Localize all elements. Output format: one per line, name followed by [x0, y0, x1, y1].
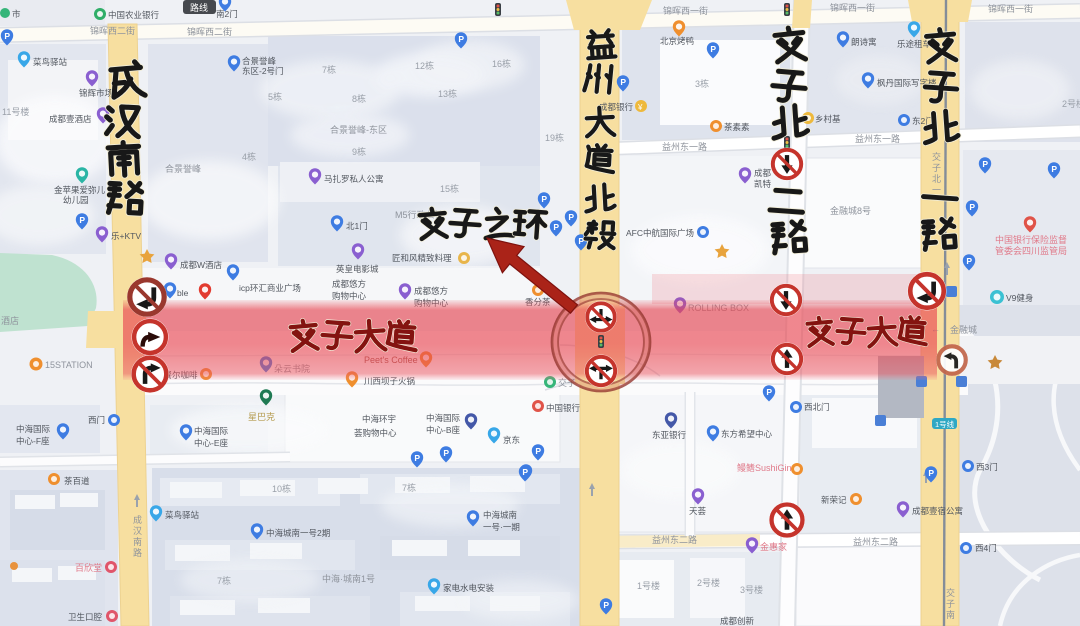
svg-text:东区-2号门: 东区-2号门 — [242, 66, 284, 76]
svg-text:11号楼: 11号楼 — [2, 106, 29, 117]
svg-text:益州东一路: 益州东一路 — [662, 141, 707, 152]
svg-text:百欣堂: 百欣堂 — [75, 562, 102, 573]
svg-text:西3门: 西3门 — [976, 462, 998, 472]
svg-text:马扎罗私人公寓: 马扎罗私人公寓 — [324, 174, 384, 184]
svg-text:乐+KTV: 乐+KTV — [111, 231, 141, 241]
svg-text:路线: 路线 — [190, 2, 208, 13]
svg-text:子: 子 — [932, 163, 941, 173]
svg-text:中心-F座: 中心-F座 — [16, 436, 50, 446]
svg-text:AFC中航国际广场: AFC中航国际广场 — [626, 228, 694, 238]
svg-text:10栋: 10栋 — [272, 483, 291, 494]
svg-text:北1门: 北1门 — [346, 221, 368, 231]
svg-text:一: 一 — [932, 185, 941, 195]
svg-text:合景誉峰: 合景誉峰 — [165, 163, 201, 174]
svg-text:一号·一期: 一号·一期 — [483, 522, 520, 532]
svg-text:汉: 汉 — [133, 526, 142, 536]
svg-text:新荣记: 新荣记 — [821, 495, 847, 505]
svg-text:北: 北 — [932, 174, 941, 184]
svg-text:5栋: 5栋 — [268, 91, 282, 102]
svg-text:成都创新: 成都创新 — [720, 616, 755, 626]
svg-text:京东: 京东 — [503, 435, 520, 445]
svg-text:ble: ble — [177, 288, 189, 298]
svg-text:成都悠方: 成都悠方 — [414, 286, 448, 296]
svg-text:中国银行: 中国银行 — [546, 403, 581, 413]
svg-text:中海城南一号2期: 中海城南一号2期 — [266, 528, 330, 538]
svg-text:成都: 成都 — [754, 168, 772, 178]
svg-text:中海·城南1号: 中海·城南1号 — [322, 573, 375, 584]
svg-text:19栋: 19栋 — [545, 132, 564, 143]
svg-text:16栋: 16栋 — [492, 58, 511, 69]
svg-text:益州东二路: 益州东二路 — [853, 536, 898, 547]
svg-text:幼儿园: 幼儿园 — [63, 195, 89, 205]
svg-text:家电水电安装: 家电水电安装 — [443, 583, 495, 593]
svg-text:锦晖西一街: 锦晖西一街 — [988, 3, 1033, 14]
svg-text:9栋: 9栋 — [352, 146, 366, 157]
svg-text:锦晖西二街: 锦晖西二街 — [187, 26, 232, 37]
svg-text:中海国际: 中海国际 — [16, 424, 51, 434]
svg-text:乡村基: 乡村基 — [815, 114, 841, 124]
svg-text:锦辉市场: 锦辉市场 — [79, 88, 113, 98]
svg-text:北京烤鸭: 北京烤鸭 — [660, 36, 694, 46]
svg-text:3栋: 3栋 — [695, 78, 709, 89]
svg-text:12栋: 12栋 — [415, 60, 434, 71]
svg-text:1号线: 1号线 — [935, 419, 955, 429]
svg-text:菜鸟驿站: 菜鸟驿站 — [33, 57, 68, 67]
svg-text:西门: 西门 — [88, 415, 105, 425]
svg-text:中海国际: 中海国际 — [194, 426, 229, 436]
svg-text:成都W酒店: 成都W酒店 — [180, 260, 223, 270]
svg-text:交: 交 — [932, 151, 941, 162]
svg-text:益州东二路: 益州东二路 — [652, 534, 697, 545]
svg-text:东亚银行: 东亚银行 — [652, 430, 687, 440]
svg-text:合景誉峰-东区: 合景誉峰-东区 — [330, 124, 387, 135]
svg-text:西4门: 西4门 — [975, 543, 997, 553]
svg-text:朗诗寓: 朗诗寓 — [851, 37, 877, 47]
svg-text:3号楼: 3号楼 — [740, 584, 763, 595]
svg-text:乐途租车: 乐途租车 — [897, 39, 931, 49]
svg-text:茶素素: 茶素素 — [724, 122, 750, 132]
svg-text:东方希望中心: 东方希望中心 — [721, 429, 773, 439]
svg-text:7栋: 7栋 — [322, 64, 336, 75]
svg-text:凯特: 凯特 — [754, 179, 772, 189]
svg-text:路: 路 — [133, 547, 142, 558]
svg-text:西北门: 西北门 — [804, 402, 830, 412]
svg-text:2号楼: 2号楼 — [1062, 98, 1080, 109]
svg-text:金苹果爱弥儿: 金苹果爱弥儿 — [54, 185, 106, 195]
svg-text:中心-B座: 中心-B座 — [426, 425, 461, 435]
svg-text:1号楼: 1号楼 — [637, 580, 660, 591]
svg-text:15栋: 15栋 — [440, 183, 459, 194]
svg-text:7栋: 7栋 — [402, 482, 416, 493]
svg-text:星巴克: 星巴克 — [248, 412, 275, 422]
svg-text:金融城: 金融城 — [950, 324, 977, 335]
svg-text:交: 交 — [946, 587, 955, 598]
svg-text:英皇电影城: 英皇电影城 — [336, 264, 379, 274]
svg-text:icp环汇商业广场: icp环汇商业广场 — [239, 283, 301, 293]
svg-text:锦晖西一街: 锦晖西一街 — [663, 5, 708, 16]
svg-text:南2门: 南2门 — [216, 9, 238, 19]
svg-text:成: 成 — [133, 514, 142, 525]
svg-text:管委会四川监管局: 管委会四川监管局 — [995, 245, 1067, 256]
svg-text:成都壹宿公寓: 成都壹宿公寓 — [912, 506, 963, 516]
svg-text:南: 南 — [133, 536, 142, 547]
svg-text:2号楼: 2号楼 — [697, 577, 720, 588]
svg-text:中心-E座: 中心-E座 — [194, 438, 229, 448]
svg-text:成都悠方: 成都悠方 — [332, 279, 366, 289]
svg-text:中国农业银行: 中国农业银行 — [108, 10, 160, 20]
svg-text:荟购物中心: 荟购物中心 — [354, 428, 397, 438]
svg-text:菜鸟驿站: 菜鸟驿站 — [165, 510, 200, 520]
svg-text:7栋: 7栋 — [217, 575, 231, 586]
svg-text:鳗鳍SushiGin: 鳗鳍SushiGin — [737, 462, 792, 473]
svg-text:V9健身: V9健身 — [1006, 293, 1033, 303]
svg-text:子: 子 — [946, 599, 955, 609]
svg-text:匠和风精致料理: 匠和风精致料理 — [392, 253, 452, 263]
svg-text:金惠家: 金惠家 — [760, 541, 787, 552]
svg-text:成都银行: 成都银行 — [599, 102, 634, 112]
svg-text:金融城8号: 金融城8号 — [830, 205, 871, 216]
svg-text:购物中心: 购物中心 — [332, 291, 367, 301]
svg-text:4栋: 4栋 — [242, 151, 256, 162]
svg-text:中国银行保险监督: 中国银行保险监督 — [995, 234, 1067, 245]
svg-text:市: 市 — [12, 9, 21, 19]
svg-text:成都壹酒店: 成都壹酒店 — [49, 114, 92, 124]
svg-text:15STATION: 15STATION — [45, 360, 93, 370]
svg-text:中海国际: 中海国际 — [426, 413, 461, 423]
svg-text:锦晖西一街: 锦晖西一街 — [830, 2, 875, 13]
svg-text:酒店: 酒店 — [1, 315, 19, 326]
svg-text:合景誉峰: 合景誉峰 — [242, 56, 277, 66]
svg-text:8栋: 8栋 — [352, 93, 366, 104]
svg-text:卫生口腔: 卫生口腔 — [68, 612, 103, 622]
svg-text:13栋: 13栋 — [438, 88, 457, 99]
svg-text:锦晖西二街: 锦晖西二街 — [90, 25, 135, 36]
svg-text:天荟: 天荟 — [689, 506, 707, 516]
svg-text:¥: ¥ — [637, 103, 643, 112]
svg-text:茶百道: 茶百道 — [64, 476, 90, 486]
svg-text:益州东一路: 益州东一路 — [855, 133, 900, 144]
svg-text:中海城南: 中海城南 — [483, 510, 517, 520]
svg-text:中海环宇: 中海环宇 — [362, 414, 396, 424]
svg-text:南: 南 — [946, 609, 955, 620]
